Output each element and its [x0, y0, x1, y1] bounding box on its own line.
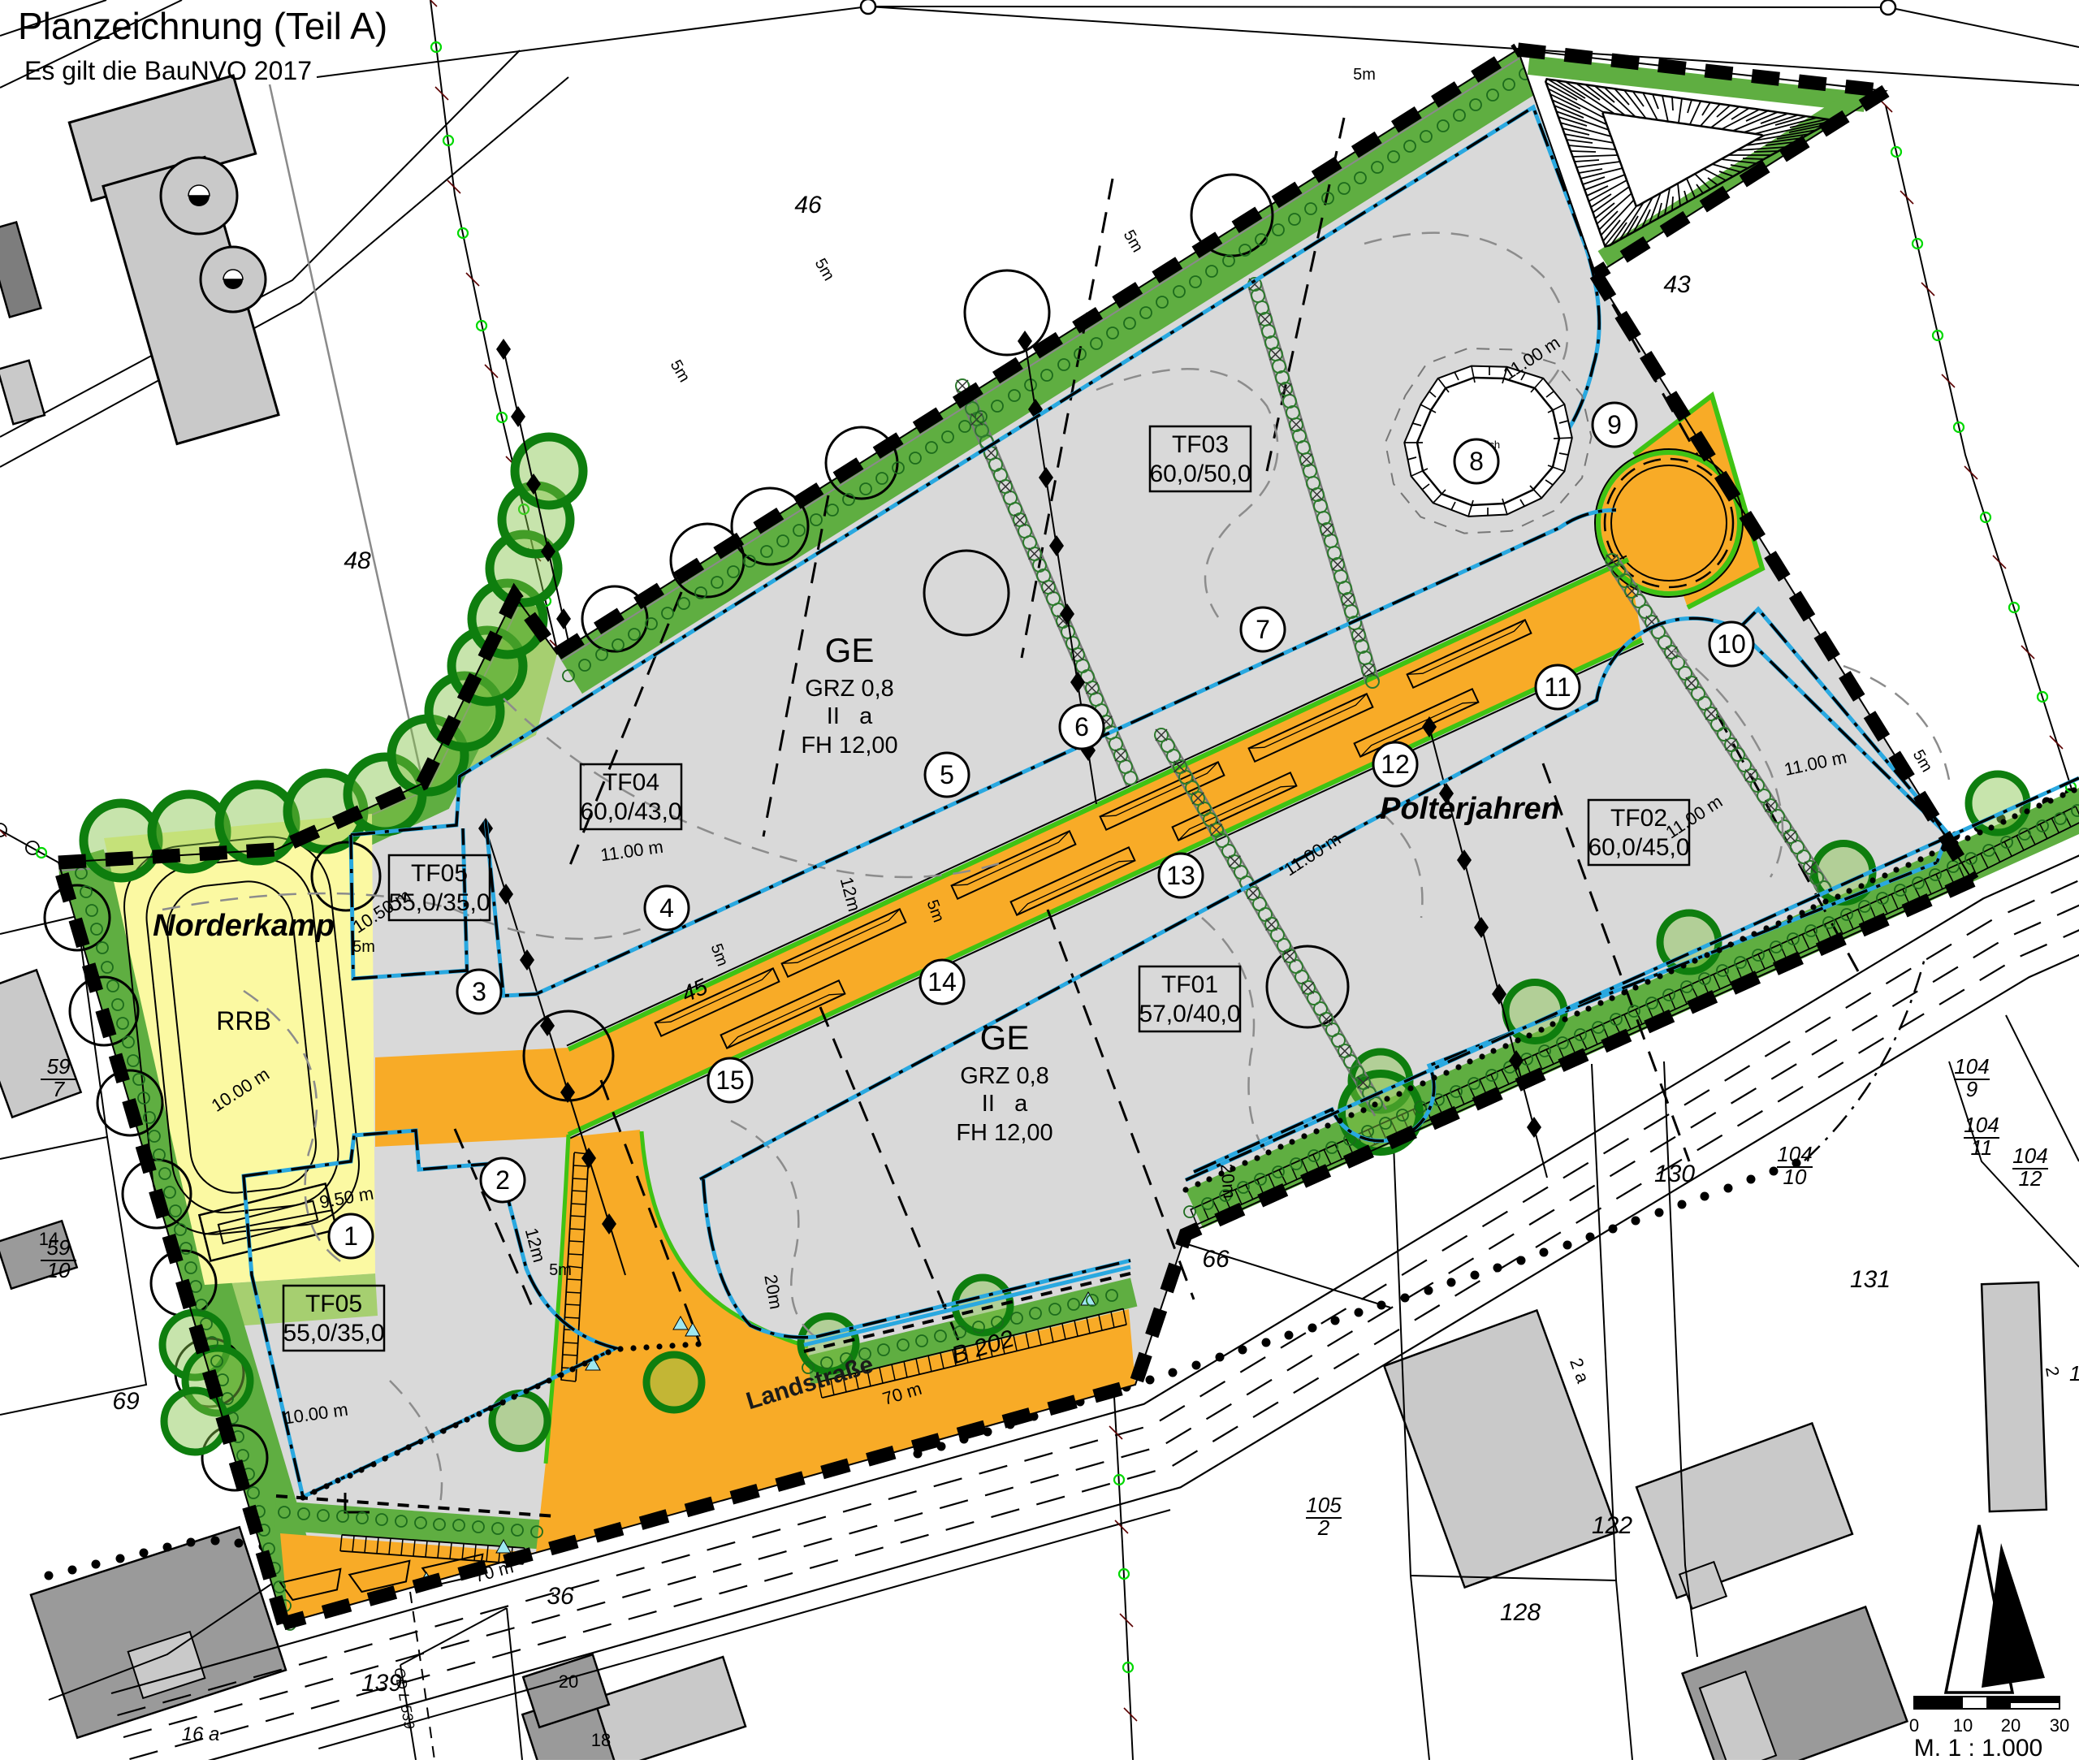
svg-text:5m: 5m [352, 938, 375, 956]
svg-text:GRZ 0,8: GRZ 0,8 [805, 676, 894, 702]
svg-text:11: 11 [1971, 1135, 1993, 1160]
svg-text:TF05: TF05 [411, 860, 468, 887]
svg-text:59: 59 [47, 1054, 71, 1079]
svg-text:60,0/50,0: 60,0/50,0 [1149, 460, 1251, 487]
svg-text:Es gilt die BauNVO 2017: Es gilt die BauNVO 2017 [24, 56, 312, 85]
svg-text:M. 1 : 1.000: M. 1 : 1.000 [1914, 1735, 2042, 1760]
svg-text:13: 13 [1166, 861, 1195, 890]
svg-text:GRZ 0,8: GRZ 0,8 [960, 1063, 1049, 1089]
svg-text:5m: 5m [1353, 66, 1376, 84]
svg-text:55,0/35,0: 55,0/35,0 [283, 1320, 384, 1347]
svg-text:131: 131 [1850, 1266, 1891, 1293]
svg-text:11: 11 [1544, 672, 1571, 702]
svg-text:FH 12,00: FH 12,00 [956, 1120, 1052, 1146]
svg-text:128: 128 [1500, 1599, 1541, 1626]
svg-text:36: 36 [547, 1583, 574, 1610]
svg-text:69: 69 [112, 1388, 140, 1415]
svg-text:10: 10 [1953, 1715, 1973, 1736]
svg-text:12: 12 [2019, 1166, 2042, 1191]
svg-text:104: 104 [1964, 1113, 1999, 1137]
svg-text:7: 7 [53, 1077, 66, 1101]
svg-text:43: 43 [1663, 271, 1691, 298]
svg-text:57,0/40,0: 57,0/40,0 [1139, 1001, 1240, 1027]
svg-text:14: 14 [927, 967, 957, 997]
svg-text:16 a: 16 a [182, 1723, 220, 1745]
svg-text:66: 66 [1202, 1246, 1230, 1273]
svg-text:6: 6 [1074, 712, 1089, 741]
svg-text:TF02: TF02 [1610, 805, 1667, 832]
svg-text:60,0/43,0: 60,0/43,0 [580, 798, 681, 825]
svg-text:GE: GE [980, 1018, 1030, 1057]
svg-text:59: 59 [47, 1235, 71, 1260]
svg-text:20: 20 [2001, 1715, 2021, 1736]
svg-text:TF03: TF03 [1172, 431, 1229, 458]
svg-text:GE: GE [825, 631, 875, 669]
svg-text:8: 8 [1469, 447, 1484, 476]
svg-text:1: 1 [344, 1221, 358, 1251]
svg-text:30: 30 [2050, 1715, 2069, 1736]
svg-text:20: 20 [559, 1671, 578, 1692]
svg-text:TF04: TF04 [603, 769, 659, 796]
svg-text:Norderkamp: Norderkamp [153, 909, 335, 943]
svg-text:Planzeichnung (Teil A): Planzeichnung (Teil A) [18, 5, 387, 47]
svg-text:RRB: RRB [216, 1006, 271, 1035]
svg-text:122: 122 [1592, 1512, 1632, 1539]
svg-text:20m: 20m [1217, 1163, 1240, 1200]
svg-text:9: 9 [1607, 410, 1622, 439]
svg-text:105: 105 [1306, 1493, 1342, 1517]
svg-text:2: 2 [495, 1165, 510, 1195]
svg-text:7: 7 [1256, 615, 1270, 644]
svg-text:10: 10 [1783, 1165, 1807, 1189]
svg-text:10: 10 [2069, 1361, 2079, 1386]
svg-text:4: 4 [659, 893, 674, 923]
svg-text:Polterjahren: Polterjahren [1380, 792, 1560, 826]
svg-text:5: 5 [940, 760, 954, 789]
svg-text:FH 12,00: FH 12,00 [801, 733, 897, 759]
svg-text:104: 104 [2012, 1144, 2047, 1168]
svg-text:9: 9 [1966, 1077, 1977, 1101]
svg-text:130: 130 [1654, 1161, 1695, 1187]
svg-text:3: 3 [472, 977, 486, 1006]
svg-text:10: 10 [1717, 629, 1746, 659]
svg-text:5m: 5m [549, 1261, 572, 1279]
svg-text:TF01: TF01 [1161, 971, 1218, 998]
svg-text:II a: II a [827, 703, 873, 729]
svg-text:2: 2 [1317, 1515, 1330, 1540]
svg-text:104: 104 [1954, 1054, 1989, 1079]
svg-text:TF05: TF05 [305, 1291, 362, 1317]
svg-text:18: 18 [591, 1730, 611, 1750]
svg-text:0: 0 [1909, 1715, 1919, 1736]
svg-text:12: 12 [1381, 750, 1410, 779]
svg-text:15: 15 [715, 1066, 745, 1095]
svg-text:10: 10 [47, 1258, 71, 1282]
svg-text:48: 48 [344, 547, 371, 574]
svg-text:II a: II a [982, 1091, 1028, 1117]
svg-text:46: 46 [794, 192, 822, 218]
svg-text:104: 104 [1777, 1142, 1812, 1166]
